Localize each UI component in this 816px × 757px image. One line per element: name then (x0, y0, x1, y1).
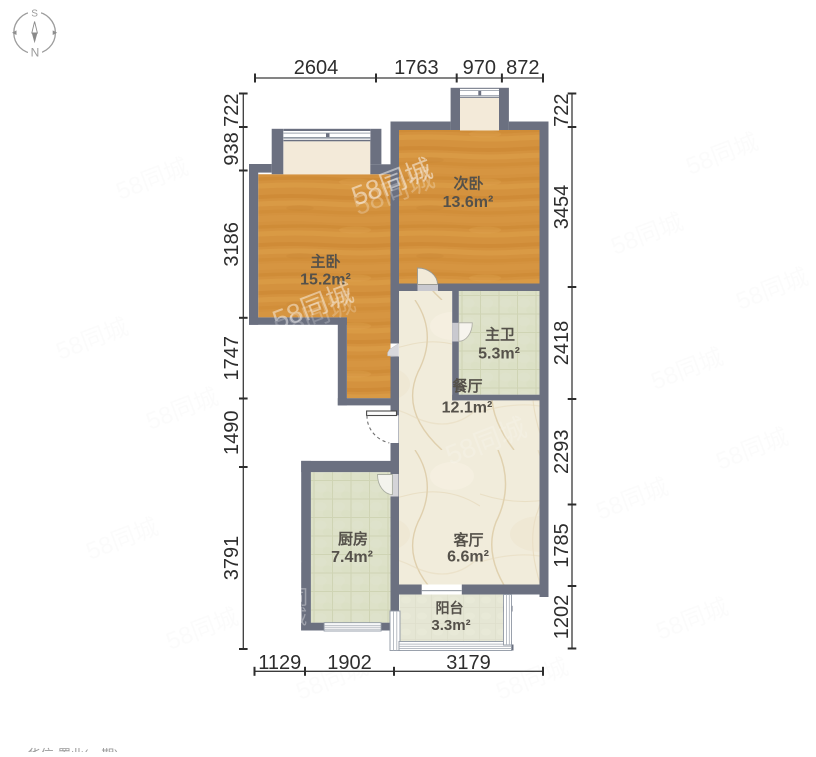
svg-text:1763: 1763 (394, 57, 439, 79)
svg-text:2293: 2293 (551, 429, 573, 474)
svg-text:3186: 3186 (221, 222, 243, 267)
svg-text:5.3m²: 5.3m² (478, 346, 520, 363)
svg-text:S: S (31, 9, 38, 20)
svg-text:3179: 3179 (446, 652, 491, 674)
svg-text:6.6m²: 6.6m² (447, 549, 489, 566)
svg-text:N: N (31, 46, 40, 60)
svg-text:1747: 1747 (221, 336, 243, 381)
svg-text:客厅: 客厅 (452, 531, 483, 549)
svg-text:1129: 1129 (258, 652, 301, 674)
svg-text:8: 8 (290, 567, 301, 589)
svg-text:872: 872 (506, 57, 539, 79)
svg-text:13.6m²: 13.6m² (443, 194, 494, 211)
svg-text:同: 同 (288, 587, 308, 609)
svg-text:1202: 1202 (551, 595, 573, 640)
svg-text:城: 城 (287, 606, 307, 629)
svg-text:主卧: 主卧 (310, 253, 340, 271)
svg-text:阳台: 阳台 (436, 600, 464, 616)
svg-text:3791: 3791 (221, 536, 243, 581)
svg-text:2418: 2418 (551, 321, 573, 366)
svg-text:7.4m²: 7.4m² (331, 549, 373, 566)
svg-text:722: 722 (551, 94, 573, 127)
svg-text:华信·置业(一期): 华信·置业(一期) (28, 747, 119, 752)
svg-text:1785: 1785 (551, 523, 573, 568)
svg-text:938: 938 (221, 132, 243, 165)
svg-text:餐厅: 餐厅 (452, 377, 482, 395)
svg-text:722: 722 (221, 94, 243, 127)
svg-text:2604: 2604 (294, 57, 339, 79)
svg-text:970: 970 (463, 57, 496, 79)
svg-text:3.3m²: 3.3m² (431, 617, 470, 634)
svg-text:3454: 3454 (551, 185, 573, 230)
svg-text:厨房: 厨房 (338, 530, 368, 548)
svg-text:主卫: 主卫 (485, 326, 515, 344)
svg-text:1490: 1490 (221, 411, 243, 456)
svg-text:次卧: 次卧 (453, 175, 483, 193)
svg-text:12.1m²: 12.1m² (442, 400, 493, 417)
